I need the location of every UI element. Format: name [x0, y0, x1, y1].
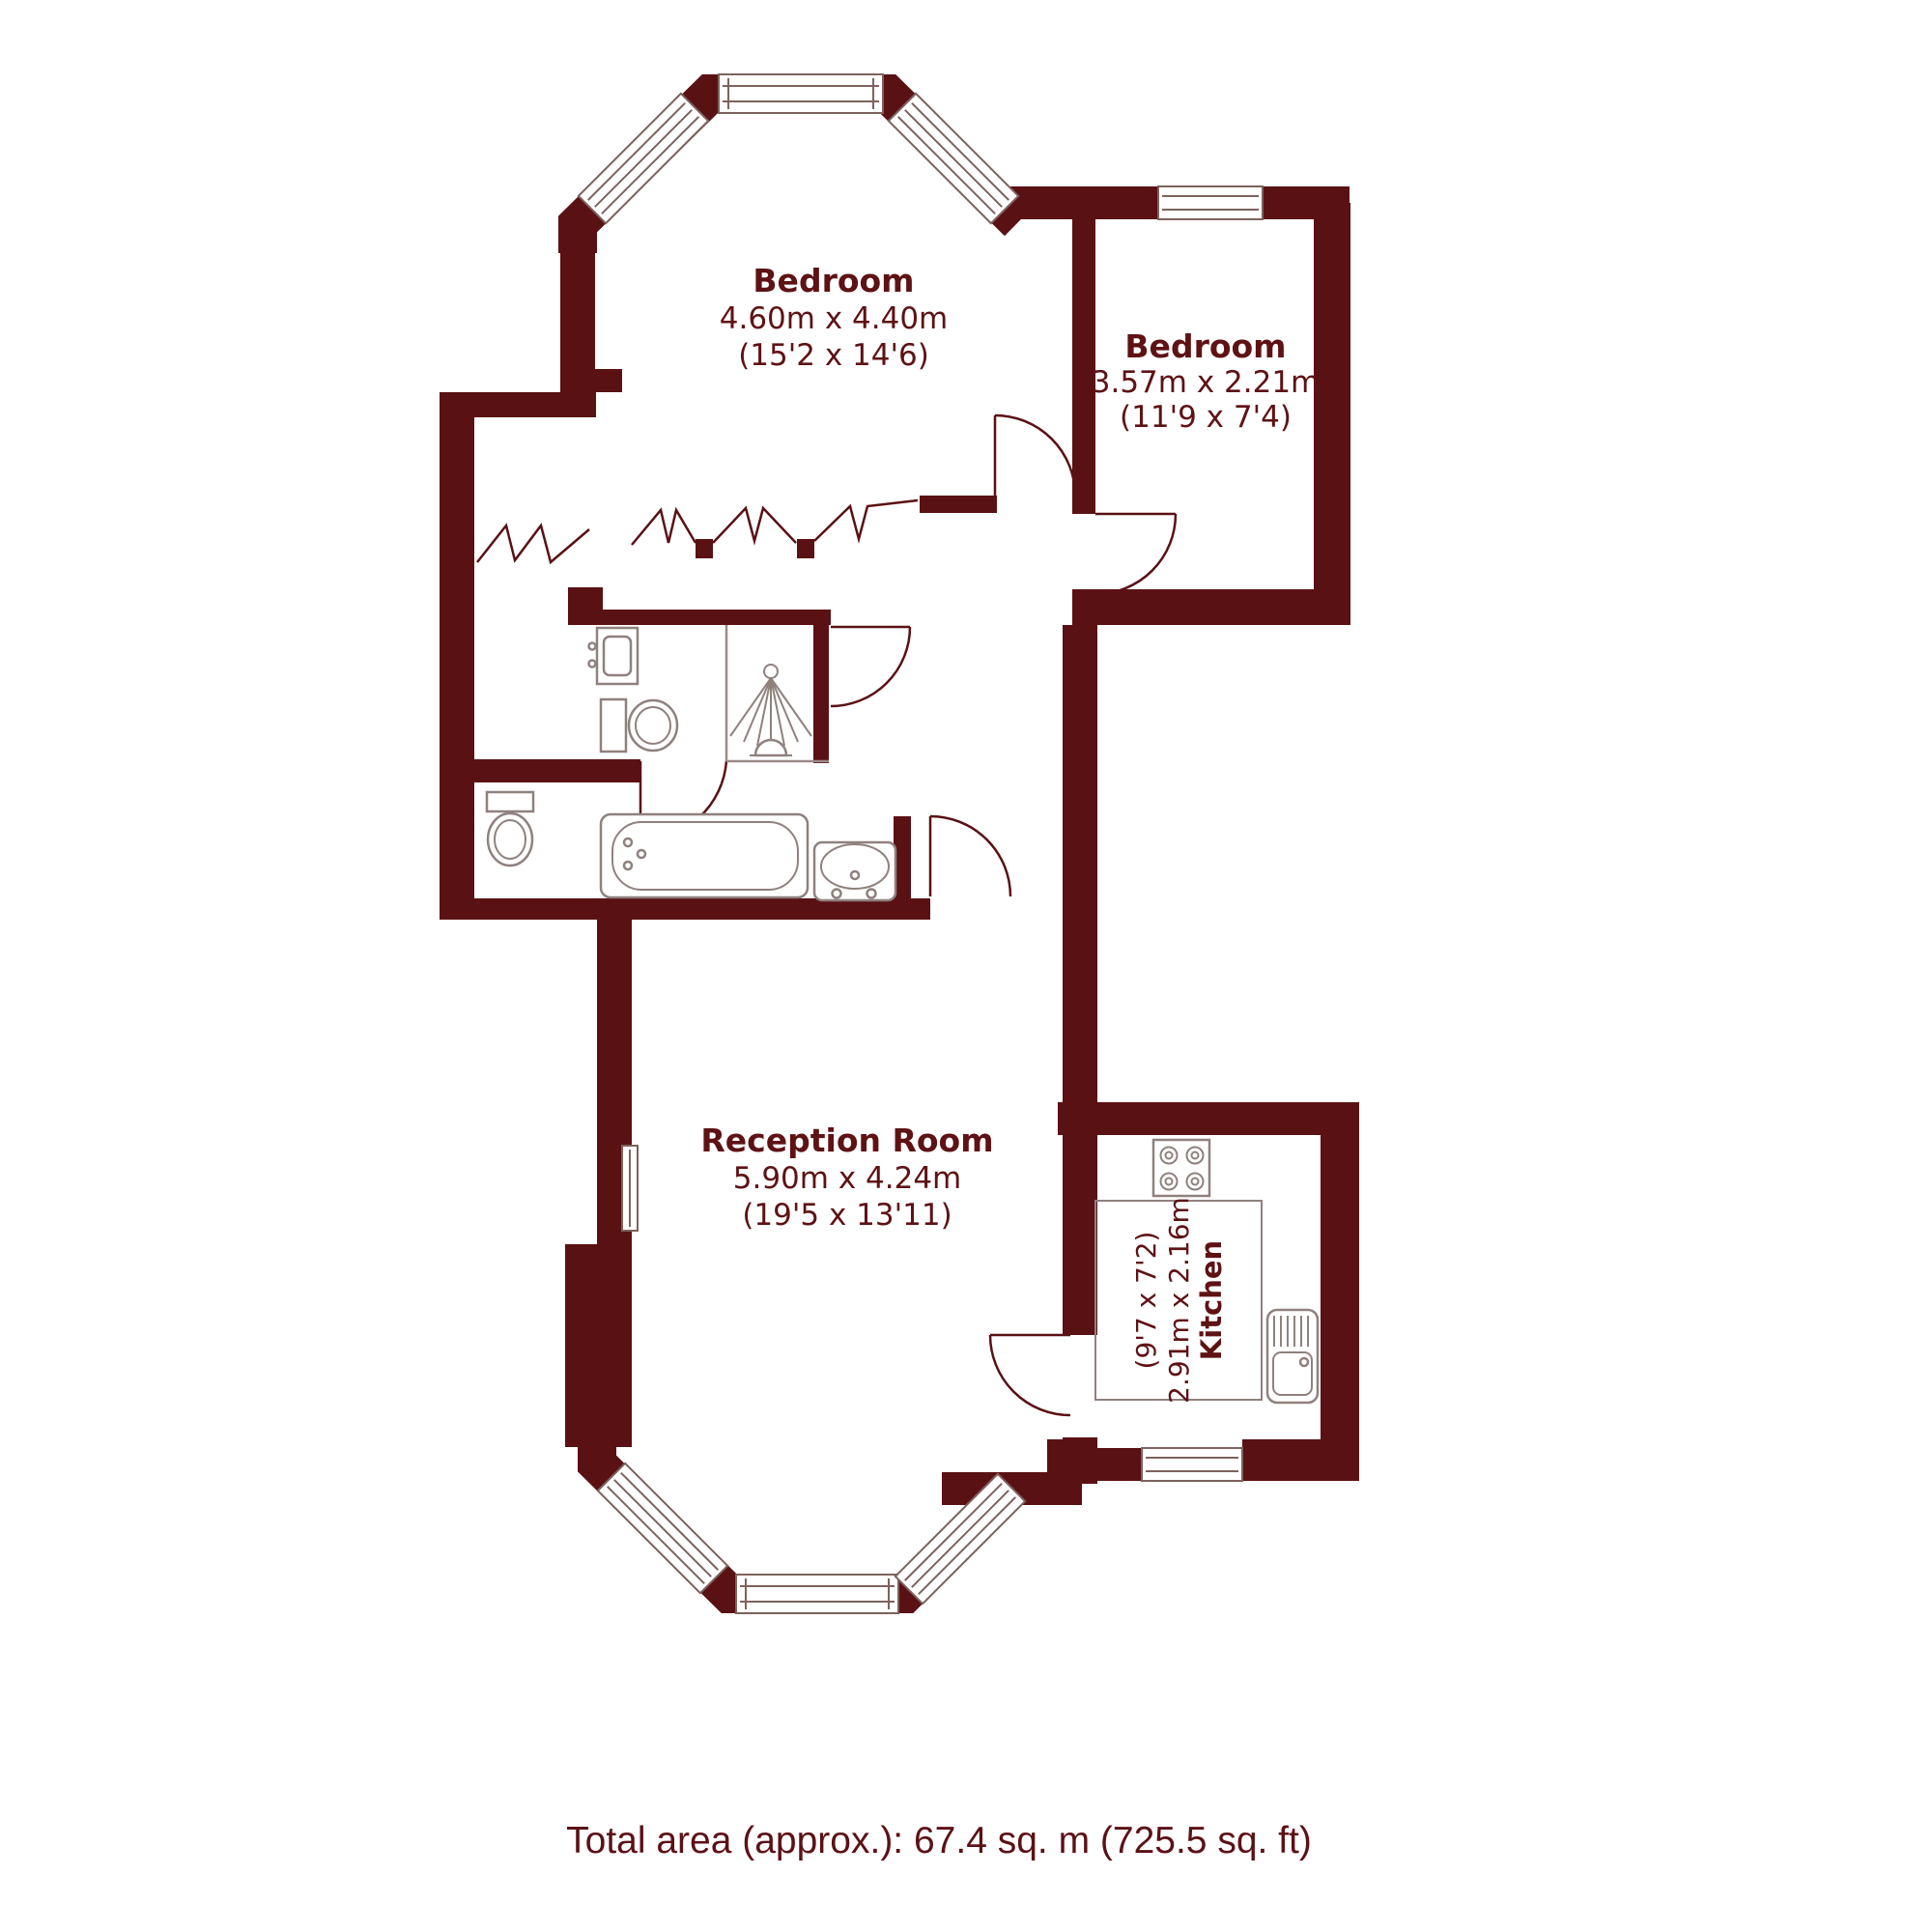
wall: [560, 369, 622, 392]
room-label-kitchen: (9'7 x 7'2) 2.91m x 2.16m Kitchen: [1130, 1197, 1228, 1404]
wall: [560, 218, 595, 369]
window-icon: [622, 1146, 638, 1231]
room-dimensions-imperial: (19'5 x 13'11): [742, 1198, 952, 1233]
wall: [1321, 1135, 1359, 1448]
wall: [1242, 1439, 1359, 1481]
toilet-icon: [487, 792, 533, 866]
wall: [1314, 203, 1350, 625]
room-name: Reception Room: [700, 1122, 993, 1159]
door-swing-icon: [930, 816, 1010, 896]
room-dimensions-imperial: (11'9 x 7'4): [1120, 400, 1292, 435]
wall: [1072, 589, 1350, 625]
bathtub-icon: [601, 814, 808, 897]
wall: [797, 539, 814, 558]
room-dimensions-metric: 2.91m x 2.16m: [1163, 1197, 1195, 1404]
room-dimensions-imperial: (9'7 x 7'2): [1130, 1232, 1162, 1370]
room-name: Bedroom: [1124, 327, 1286, 365]
room-dimensions-metric: 3.57m x 2.21m: [1092, 365, 1321, 400]
room-dimensions-imperial: (15'2 x 14'6): [738, 338, 929, 373]
door-swing-icon: [995, 415, 1075, 496]
room-label-bedroom-1: Bedroom 4.60m x 4.40m (15'2 x 14'6): [720, 262, 949, 373]
window-icon: [736, 1575, 898, 1613]
basin-icon: [589, 628, 639, 684]
kitchen-sink-icon: [1267, 1310, 1318, 1403]
wall: [440, 392, 474, 920]
wall: [1058, 1102, 1359, 1135]
room-name: Bedroom: [753, 262, 914, 299]
wall: [813, 621, 829, 763]
wall: [1063, 625, 1097, 1102]
window-icon: [1142, 1448, 1242, 1481]
total-area-text: Total area (approx.): 67.4 sq. m (725.5 …: [566, 1820, 1312, 1861]
door-swing-icon: [1095, 514, 1176, 594]
wall: [1063, 1135, 1097, 1335]
room-dimensions-metric: 5.90m x 4.24m: [733, 1161, 962, 1196]
wall: [568, 610, 831, 625]
window-icon: [579, 94, 708, 223]
room-label-reception: Reception Room 5.90m x 4.24m (19'5 x 13'…: [700, 1122, 993, 1233]
pedestal-sink-icon: [814, 842, 895, 900]
floorplan-page: Bedroom 4.60m x 4.40m (15'2 x 14'6) Bedr…: [0, 0, 1932, 1932]
window-icon: [598, 1463, 727, 1593]
toilet-icon: [601, 699, 677, 752]
wall: [1047, 1439, 1082, 1505]
window-icon: [1158, 186, 1263, 219]
window-icon: [889, 94, 1018, 223]
door-swing-icon: [831, 627, 910, 706]
wall: [565, 1244, 632, 1447]
door-swing-icon: [990, 1335, 1070, 1415]
wall: [696, 539, 713, 558]
hob-icon: [1153, 1140, 1209, 1196]
wall: [474, 898, 930, 920]
room-dimensions-metric: 4.60m x 4.40m: [720, 301, 949, 336]
floorplan-canvas: Bedroom 4.60m x 4.40m (15'2 x 14'6) Bedr…: [0, 0, 1932, 1932]
wall: [474, 759, 640, 782]
wall: [920, 496, 997, 513]
room-name: Kitchen: [1195, 1240, 1228, 1360]
wall: [1001, 186, 1158, 219]
room-label-bedroom-2: Bedroom 3.57m x 2.21m (11'9 x 7'4): [1092, 327, 1321, 435]
window-icon: [719, 74, 883, 113]
